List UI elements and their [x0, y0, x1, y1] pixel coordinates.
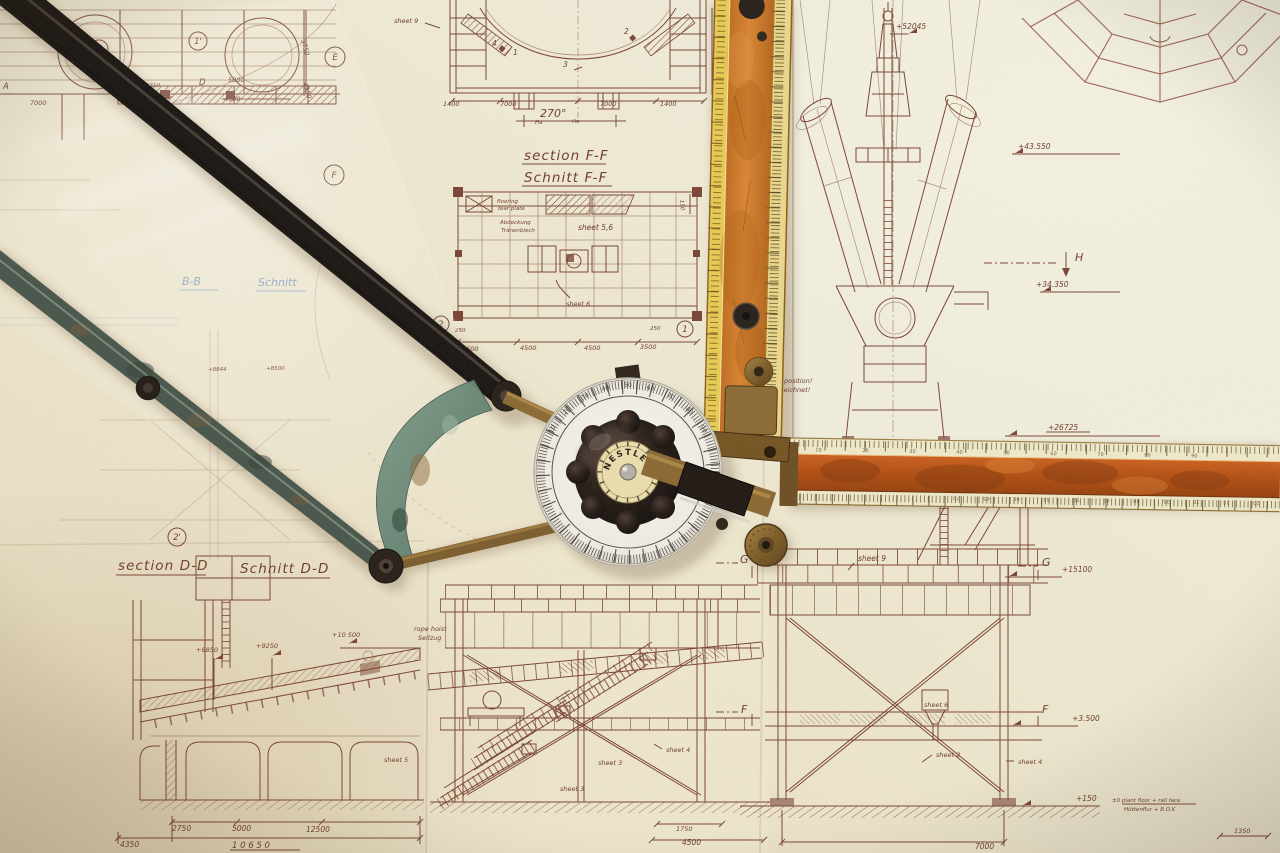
film-grain — [0, 0, 1280, 853]
photo-canvas: 2' 1' A C 6310 D 5000 4500 7000 7000 375… — [0, 0, 1280, 853]
